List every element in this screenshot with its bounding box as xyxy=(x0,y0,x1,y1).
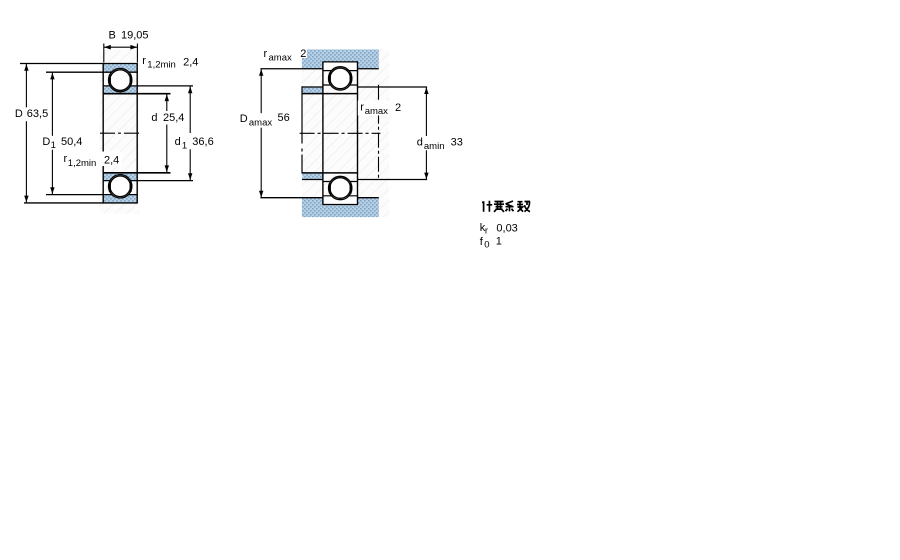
svg-text:33: 33 xyxy=(451,137,463,149)
svg-text:d: d xyxy=(417,137,423,149)
svg-text:2: 2 xyxy=(395,102,401,114)
svg-text:19,05: 19,05 xyxy=(121,30,149,42)
svg-text:63,5: 63,5 xyxy=(27,108,48,120)
svg-text:56: 56 xyxy=(278,112,290,124)
svg-text:36,6: 36,6 xyxy=(192,136,213,148)
svg-text:D: D xyxy=(15,108,23,120)
svg-text:r: r xyxy=(485,226,488,237)
svg-text:D: D xyxy=(42,136,50,148)
svg-text:1: 1 xyxy=(496,236,502,248)
svg-text:amin: amin xyxy=(424,141,445,152)
svg-text:B: B xyxy=(109,30,116,42)
svg-text:r: r xyxy=(142,55,146,67)
svg-text:d: d xyxy=(175,136,181,148)
svg-text:amax: amax xyxy=(269,53,292,64)
svg-text:amax: amax xyxy=(365,106,388,117)
svg-text:1,2min: 1,2min xyxy=(68,158,97,169)
svg-text:50,4: 50,4 xyxy=(61,136,82,148)
svg-text:0,03: 0,03 xyxy=(496,223,517,235)
svg-text:D: D xyxy=(240,113,248,125)
svg-text:1: 1 xyxy=(182,141,187,152)
svg-text:2: 2 xyxy=(300,48,306,60)
svg-text:1: 1 xyxy=(51,140,56,151)
svg-text:0: 0 xyxy=(484,240,489,251)
svg-text:1,2min: 1,2min xyxy=(147,60,176,71)
svg-text:d: d xyxy=(151,112,157,124)
svg-text:r: r xyxy=(360,102,364,114)
svg-text:2,4: 2,4 xyxy=(104,154,119,166)
svg-text:r: r xyxy=(264,48,268,60)
svg-text:2,4: 2,4 xyxy=(183,57,198,69)
svg-text:25,4: 25,4 xyxy=(163,112,184,124)
svg-text:amax: amax xyxy=(249,118,272,129)
